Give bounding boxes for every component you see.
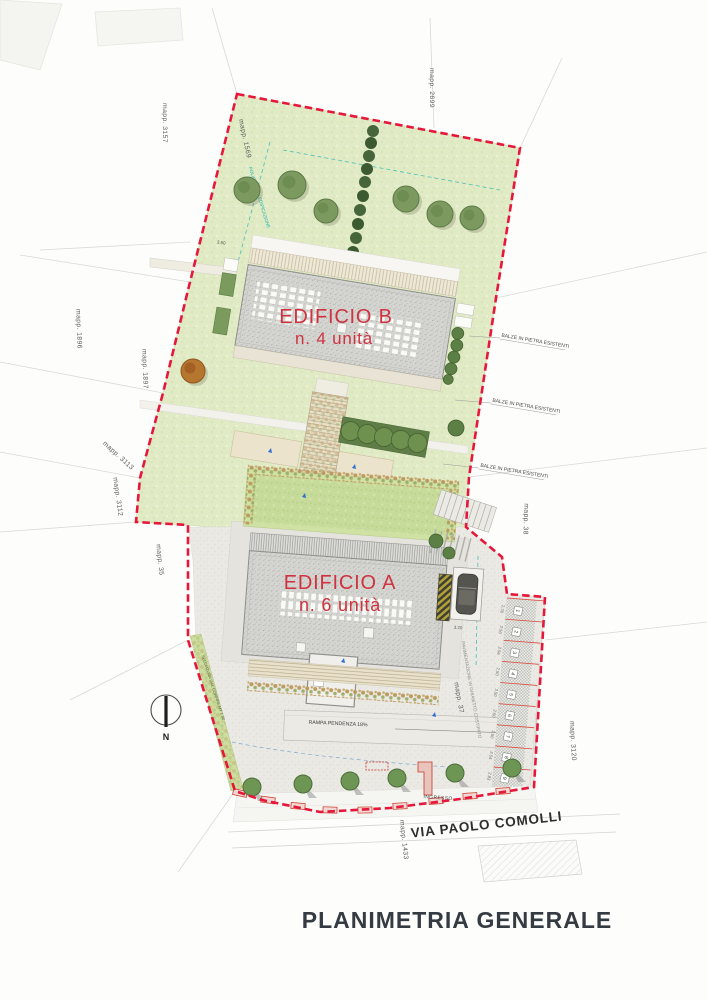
sheet-title: PLANIMETRIA GENERALE — [302, 907, 613, 933]
site-plan-sheet: SELCIATURA DAL CONFINE MT 1.50 POLIGONO … — [0, 0, 707, 1000]
north-label: N — [163, 732, 170, 742]
parcel-3157: mapp. 3157 — [161, 103, 168, 143]
single-shrub — [448, 420, 464, 436]
parcel-1897: mapp. 1897 — [140, 349, 148, 389]
parcel-1896: mapp. 1896 — [74, 309, 82, 349]
parcel-38: mapp. 38 — [521, 503, 529, 535]
parcel-2699: mapp. 2699 — [428, 68, 435, 108]
bush-near-stairs-1 — [429, 534, 443, 548]
car-bay — [436, 566, 484, 623]
site-plan-drawing: SELCIATURA DAL CONFINE MT 1.50 POLIGONO … — [0, 0, 707, 1000]
building-b-units: n. 4 unità — [295, 329, 373, 348]
dimension-a-right: 3.20 — [454, 625, 463, 630]
building-a-name: EDIFICIO A — [284, 572, 396, 594]
bush-near-stairs-2 — [443, 547, 455, 559]
building-a-units: n. 6 unità — [299, 595, 381, 615]
building-b-name: EDIFICIO B — [279, 306, 393, 328]
